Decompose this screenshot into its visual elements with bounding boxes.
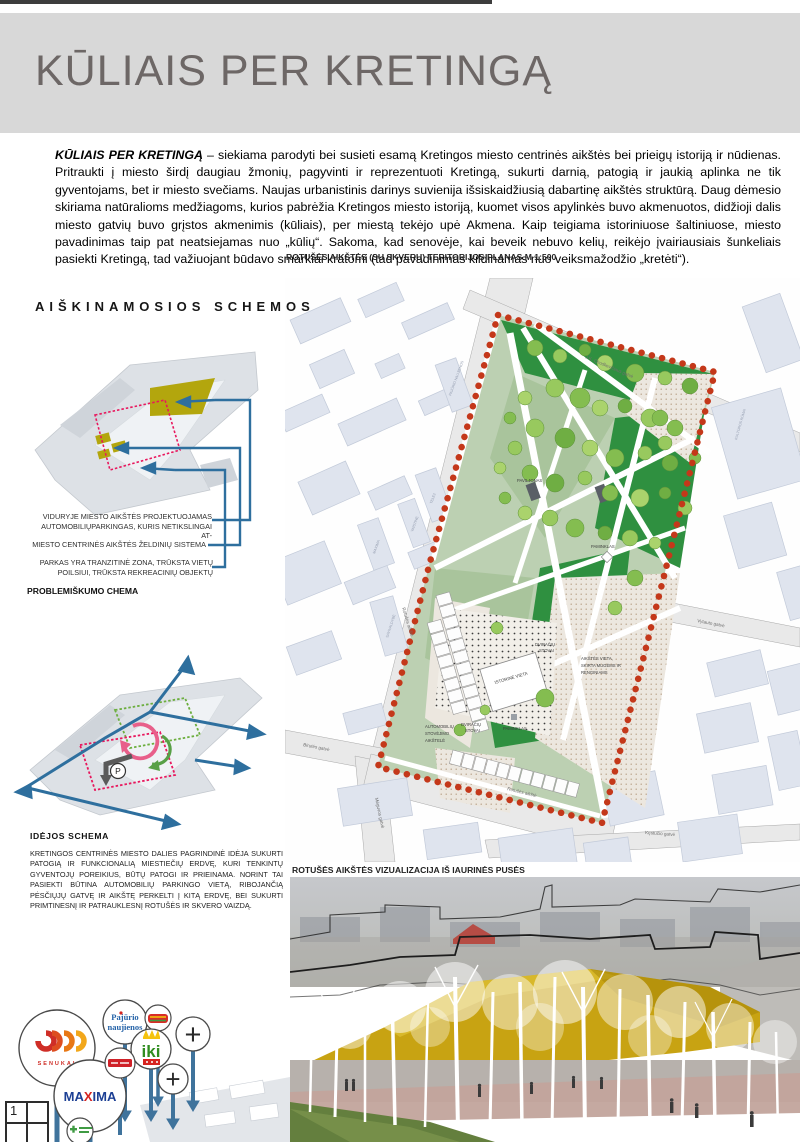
intro-paragraph: KŪLIAIS PER KRETINGĄ – siekiama parodyti…: [55, 147, 781, 269]
plus-icon: +: [165, 1064, 180, 1094]
label-paviljonas: PAVILJONAS: [517, 478, 542, 483]
sheet-cell-4: [27, 1123, 48, 1142]
axonometric-blocks-2: [30, 678, 262, 815]
pajurio-accent: [119, 1011, 122, 1014]
plan-caption: ROTUŠĖS AIKŠTĖS (SU SKVERU) TERITORIJOS …: [286, 252, 556, 262]
site-plan-map: J.K. Chodkevičiaus gatvė Vytauto gatvė B…: [285, 278, 800, 862]
iki-wordmark: iki: [142, 1042, 161, 1061]
schemes-heading: AIŠKINAMOSIOS SCHEMOS: [35, 299, 315, 314]
pajurio-line2: naujienos: [108, 1022, 144, 1032]
label-paminklas-green: PAMINKLAS: [503, 726, 527, 731]
problem-scheme-title: PROBLEMIŠKUMO CHEMA: [27, 586, 138, 596]
sheet-cell-1: 1: [6, 1102, 27, 1123]
intro-body: – siekiama parodyti bei susieti esamą Kr…: [55, 148, 781, 266]
sheet-cell-2: [27, 1102, 48, 1123]
maxima-wordmark: MAXIMA: [64, 1089, 117, 1104]
sheet-index-grid: 1: [5, 1101, 49, 1142]
monument-green-marker: [511, 714, 517, 720]
label-dviraciu-stovai-1: DVIRAČIŲ STOVAI: [535, 642, 556, 653]
label-dviraciu-stovai-2: DVIRAČIŲ STOVAI: [461, 722, 482, 733]
label-paminklas-top: PAMINKLAS: [591, 544, 615, 549]
idea-scheme-text: KRETINGOS CENTRINĖS MIESTO DALIES PAGRIN…: [30, 849, 283, 911]
competition-board: KŪLIAIS PER KRETINGĄ KŪLIAIS PER KRETING…: [0, 0, 800, 1142]
idea-scheme-title: IDĖJOS SCHEMA: [30, 831, 109, 841]
visualization-render: [290, 877, 800, 1142]
striped-logo: [148, 1014, 168, 1023]
top-edge-strip: [0, 0, 492, 4]
red-banner-logo: [108, 1059, 132, 1067]
idea-scheme-diagram: P: [0, 640, 285, 830]
problem-label-2: MIESTO CENTRINĖS AIKŠTĖS ŽELDINIŲ SISTEM…: [30, 540, 206, 550]
problem-label-3: PARKAS YRA TRANZITINĖ ZONA, TRŪKSTA VIET…: [25, 558, 213, 577]
parking-symbol: P: [115, 766, 121, 776]
plus-icon: +: [185, 1019, 202, 1051]
iki-crown-icon: [143, 1030, 160, 1039]
pajurio-line1: Pajūrio: [111, 1012, 138, 1022]
page-title: KŪLIAIS PER KRETINGĄ: [35, 47, 552, 96]
visualization-caption: ROTUŠĖS AIKŠTĖS VIZUALIZACIJA IŠ IAURINĖ…: [292, 865, 525, 875]
sheet-cell-3: [6, 1123, 27, 1142]
intro-lead: KŪLIAIS PER KRETINGĄ: [55, 148, 203, 162]
problem-label-1: VIDURYJE MIESTO AIKŠTĖS PROJEKTUOJAMAS A…: [40, 512, 212, 541]
